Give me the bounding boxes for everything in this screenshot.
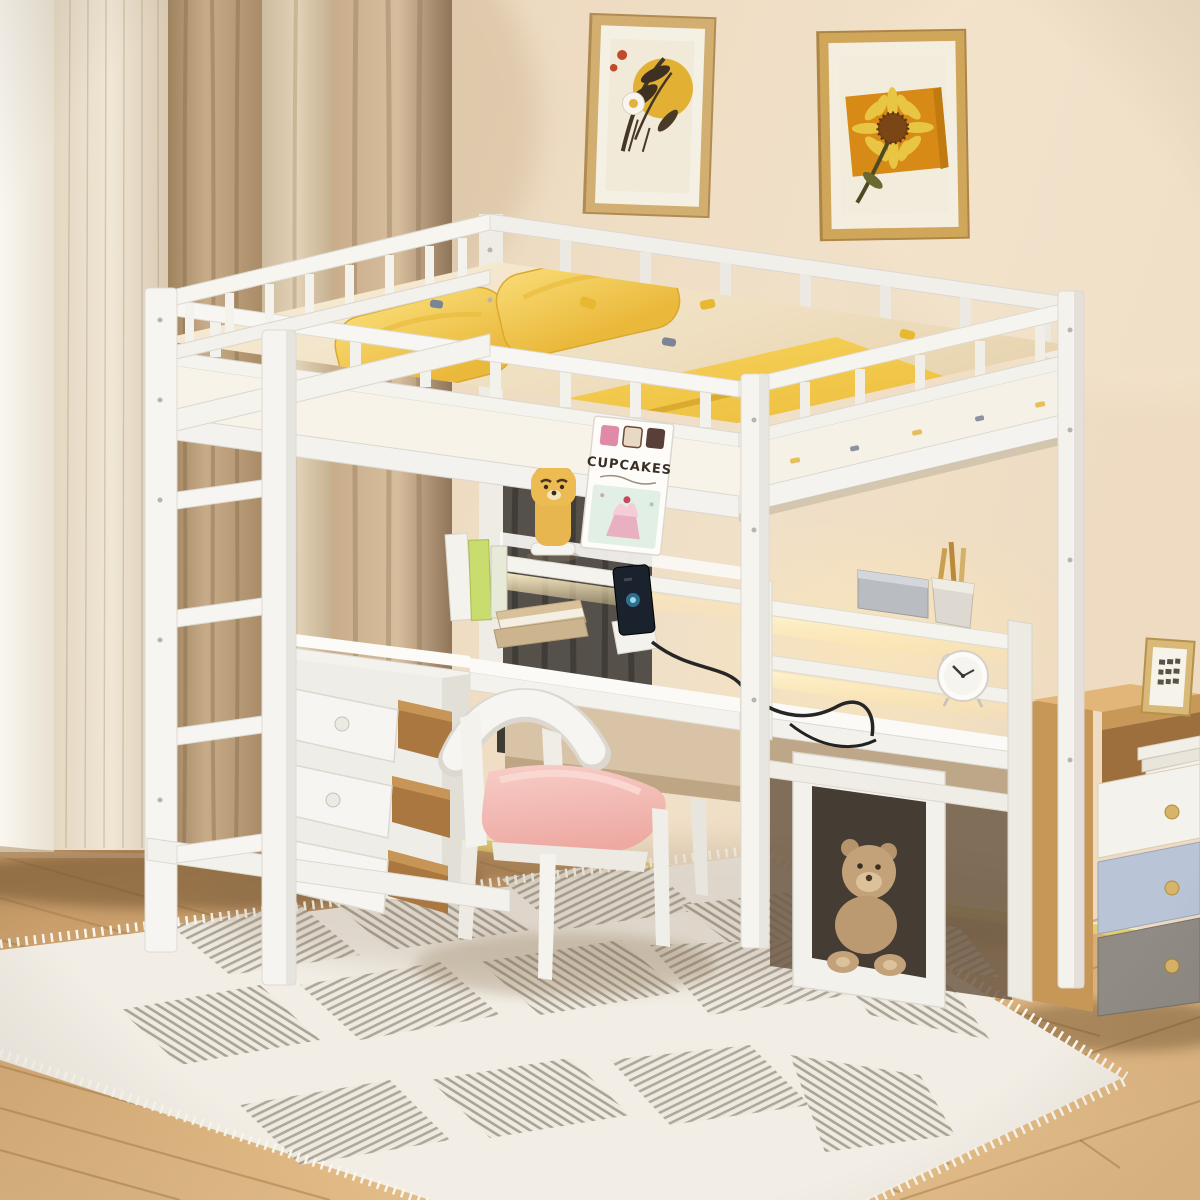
bedroom-scene: CUPCAKES (0, 0, 1200, 1200)
vignette (0, 0, 1200, 1200)
scene-canvas: CUPCAKES (0, 0, 1200, 1200)
